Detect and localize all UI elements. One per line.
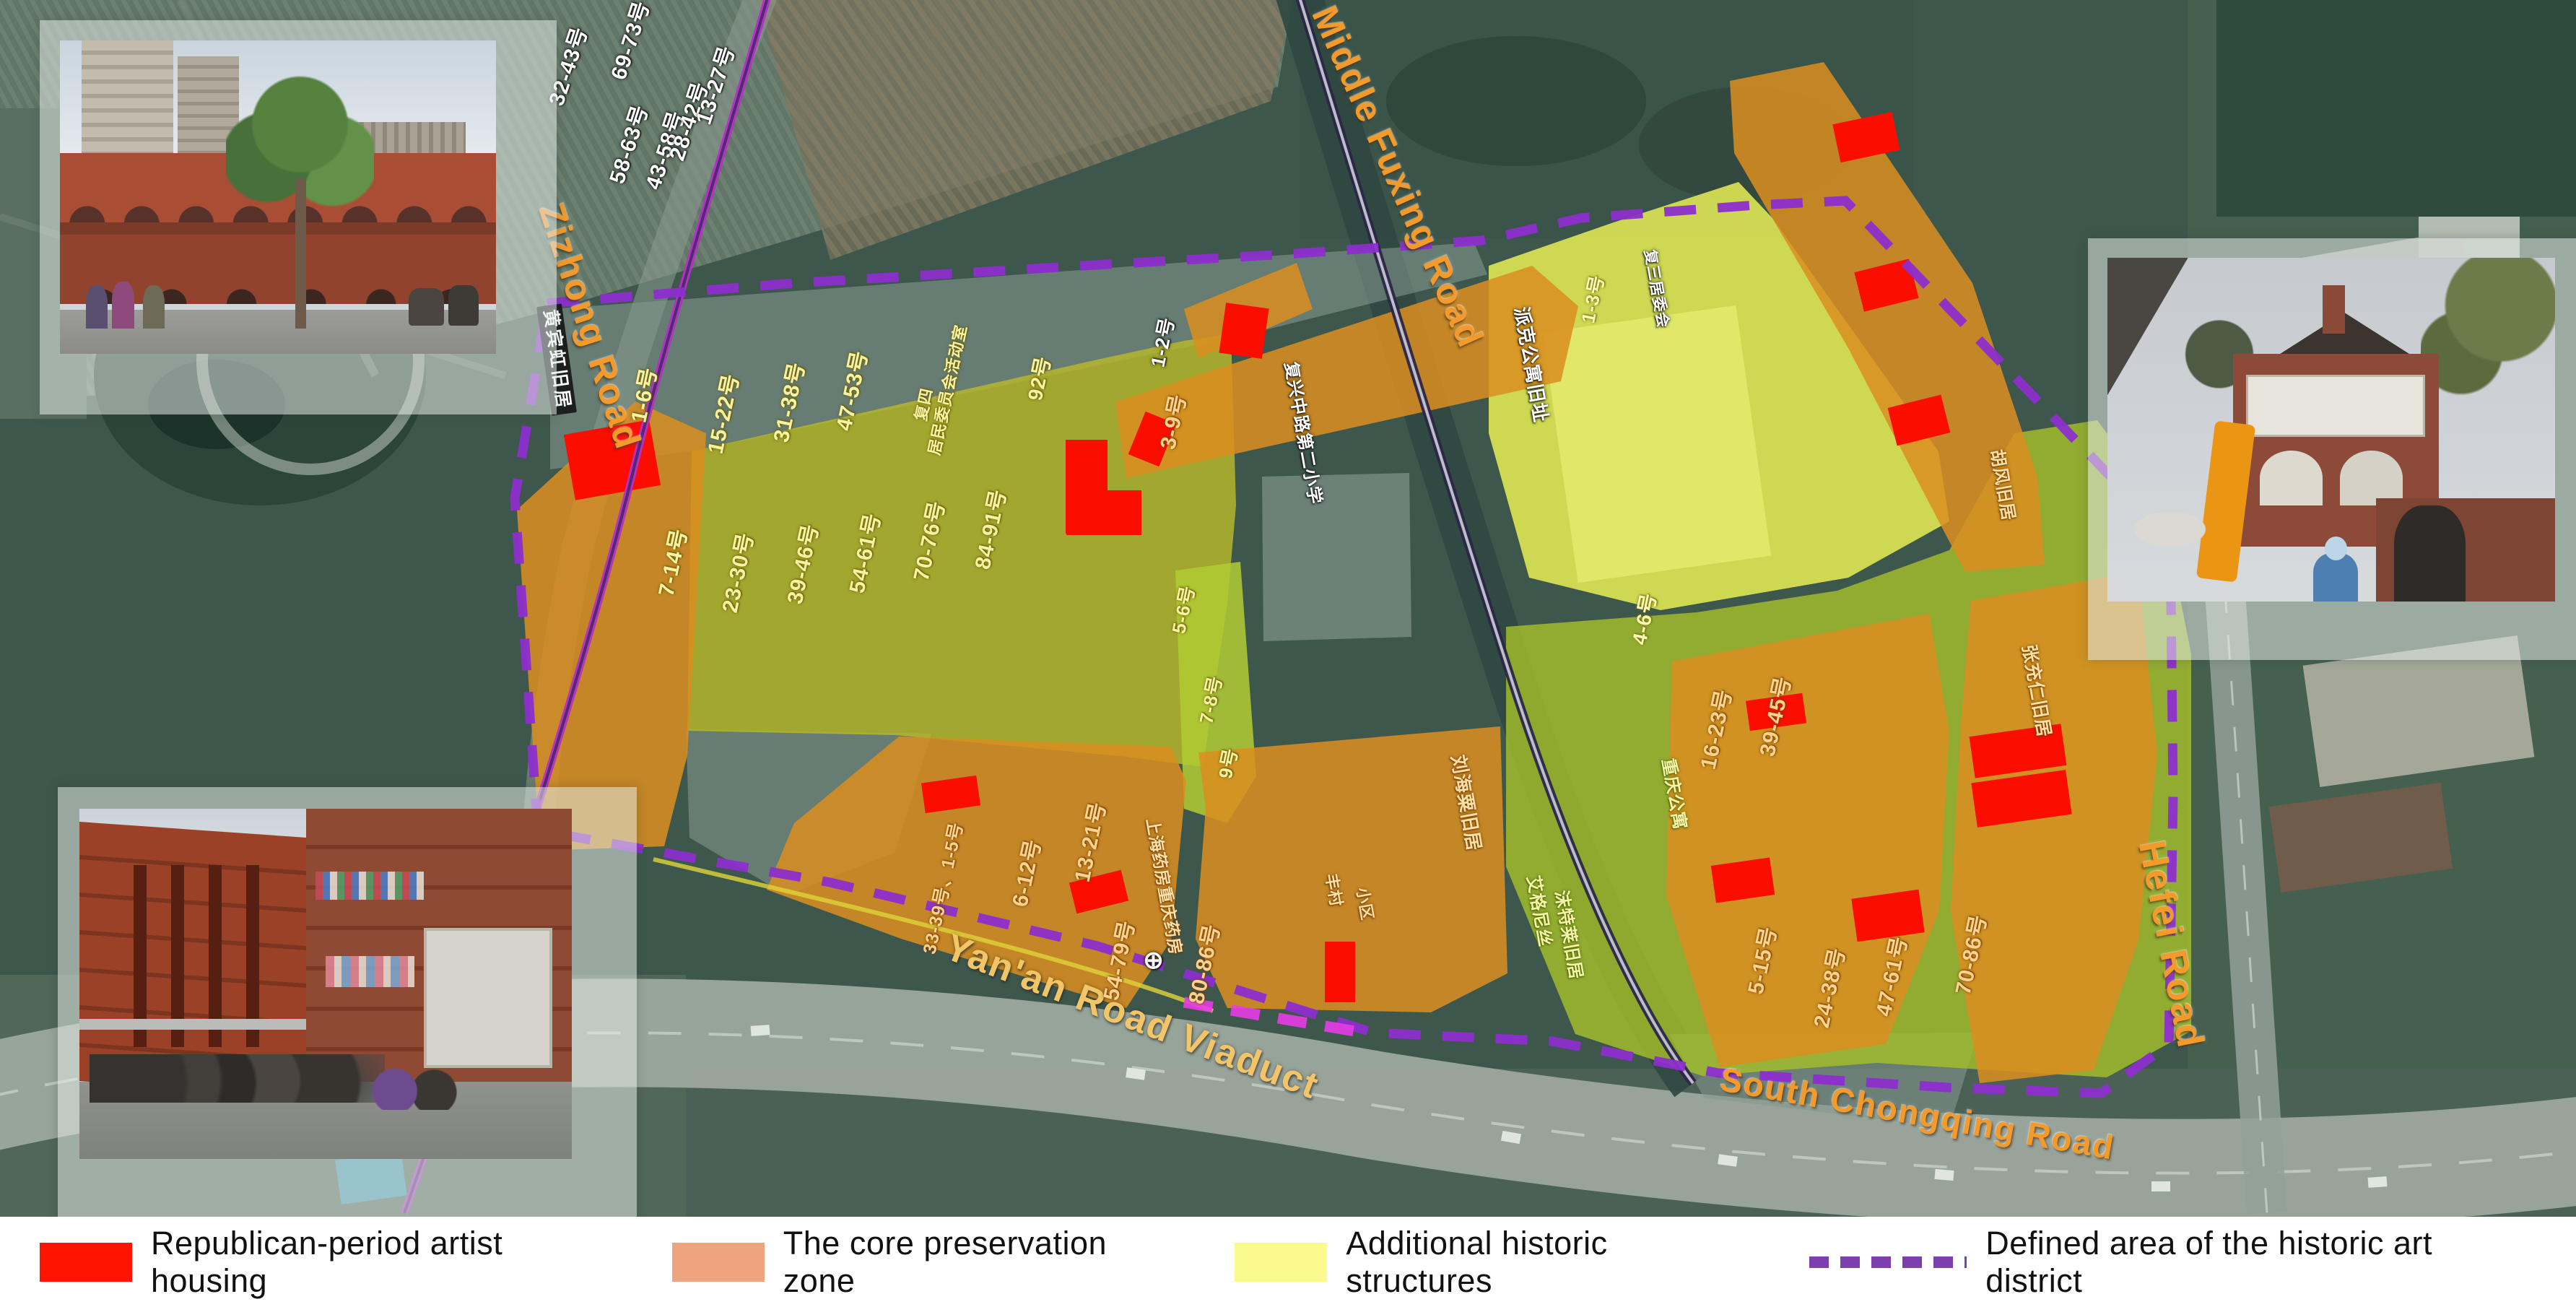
legend-color-swatch: [672, 1243, 765, 1282]
map-label: 84-91号: [972, 487, 1011, 572]
map-label: 9号: [1216, 747, 1240, 781]
map-label: 重庆公寓: [1659, 757, 1689, 832]
legend-label: Republican-period artist housing: [151, 1225, 603, 1300]
map-label: 13-21号: [1072, 800, 1110, 885]
photo-decor: [90, 1054, 385, 1103]
map-label: 丰村: [1323, 872, 1344, 908]
legend-label: The core preservation zone: [783, 1225, 1166, 1300]
map-label: 上海药房重庆药房: [1144, 817, 1184, 956]
map-label: 6-12号: [1009, 837, 1045, 908]
photo-decor: [448, 285, 479, 326]
map-label: 70-76号: [911, 499, 949, 583]
photo-decor: [79, 1019, 306, 1030]
map-label: 15-22号: [705, 372, 744, 456]
legend-label: Defined area of the historic art distric…: [1985, 1225, 2507, 1300]
inset-photo-top-left: [60, 40, 496, 354]
legend-item: The core preservation zone: [672, 1225, 1166, 1300]
road-label: Middle Fuxing Road: [1306, 1, 1489, 352]
photo-decor: [2134, 512, 2206, 547]
photo-decor: [295, 178, 305, 329]
road-label: Hefei Road: [2133, 838, 2210, 1051]
figure-historic-art-district-map: Zizhong RoadMiddle Fuxing RoadYan'an Roa…: [0, 0, 2576, 1307]
map-label: 54-61号: [847, 511, 885, 596]
map-label: 5-6号: [1169, 583, 1197, 635]
map-label: 69-73号: [608, 0, 653, 82]
map-label: 31-38号: [771, 360, 809, 445]
photo-decor: [316, 872, 424, 900]
map-label: 胡风旧居: [1988, 448, 2017, 523]
legend-color-swatch: [1235, 1243, 1327, 1282]
photo-decor: [409, 288, 443, 326]
photo-decor: [326, 956, 414, 988]
inset-photo-bottom-left: [79, 809, 572, 1159]
map-label: 1-6号: [628, 365, 661, 425]
map-label: 7-8号: [1196, 674, 1224, 726]
map-label: 47-53号: [834, 349, 872, 433]
photo-decor: [143, 285, 165, 329]
inset-photo-right-frame: [2088, 238, 2576, 660]
map-label: 复兴中路第二小学: [1282, 360, 1323, 505]
map-label: 张充仁旧居: [2019, 643, 2053, 739]
map-label: 复三居委会: [1642, 248, 1671, 329]
photo-decor: [2325, 537, 2347, 560]
photo-decor: [2246, 375, 2425, 437]
photo-decor: [86, 285, 108, 329]
map-label: 刘海粟旧居: [1448, 753, 1484, 852]
legend: Republican-period artist housingThe core…: [0, 1217, 2576, 1307]
map-label: 92号: [1025, 355, 1054, 403]
map-label: ⊕: [1143, 948, 1165, 973]
photo-decor: [365, 1068, 464, 1110]
photo-decor: [2394, 505, 2466, 602]
photo-decor: [2313, 553, 2358, 602]
map-label: 派克公寓旧址: [1512, 305, 1551, 424]
map-label: 1-2号: [1149, 316, 1178, 369]
inset-photo-right: [2107, 258, 2555, 602]
photo-decor: [2421, 258, 2555, 416]
legend-item: Additional historic structures: [1235, 1225, 1740, 1300]
map-label: 47-61号: [1874, 934, 1912, 1019]
road-label: South Chongqing Road: [1718, 1062, 2117, 1164]
photo-decor: [112, 282, 134, 329]
map-label: 70-86号: [1953, 913, 1991, 997]
inset-photo-top-left-frame: [40, 20, 557, 414]
legend-dash-swatch: [1809, 1256, 1967, 1268]
map-label: 4-6号: [1629, 591, 1660, 647]
map-label: 3-9号: [1157, 392, 1190, 451]
map-label: 小区: [1354, 886, 1375, 921]
map-label: 1-3号: [1578, 273, 1606, 325]
legend-color-swatch: [40, 1243, 132, 1282]
map-label: 80-86号: [1186, 922, 1224, 1007]
map-label: 5-15号: [1745, 924, 1780, 996]
map-label: 54-79号: [1101, 919, 1139, 1003]
map-label: 16-23号: [1698, 687, 1736, 772]
map-label: 39-45号: [1757, 674, 1796, 759]
legend-item: Defined area of the historic art distric…: [1809, 1225, 2507, 1300]
map-label: 沫特莱旧居: [1552, 889, 1584, 981]
map-label: 39-46号: [785, 522, 823, 607]
map-label: 24-38号: [1811, 946, 1850, 1030]
photo-decor: [2340, 451, 2403, 505]
map-label: 艾格尼丝: [1524, 874, 1554, 949]
map-label: 23-30号: [720, 531, 758, 615]
legend-item: Republican-period artist housing: [40, 1225, 603, 1300]
legend-label: Additional historic structures: [1346, 1225, 1740, 1300]
inset-photo-bottom-left-frame: [58, 787, 637, 1217]
map-label: 7-14号: [656, 526, 691, 598]
photo-decor: [2323, 285, 2345, 334]
satellite-map: Zizhong RoadMiddle Fuxing RoadYan'an Roa…: [0, 0, 2576, 1217]
photo-decor: [2260, 451, 2323, 505]
photo-decor: [424, 928, 552, 1068]
